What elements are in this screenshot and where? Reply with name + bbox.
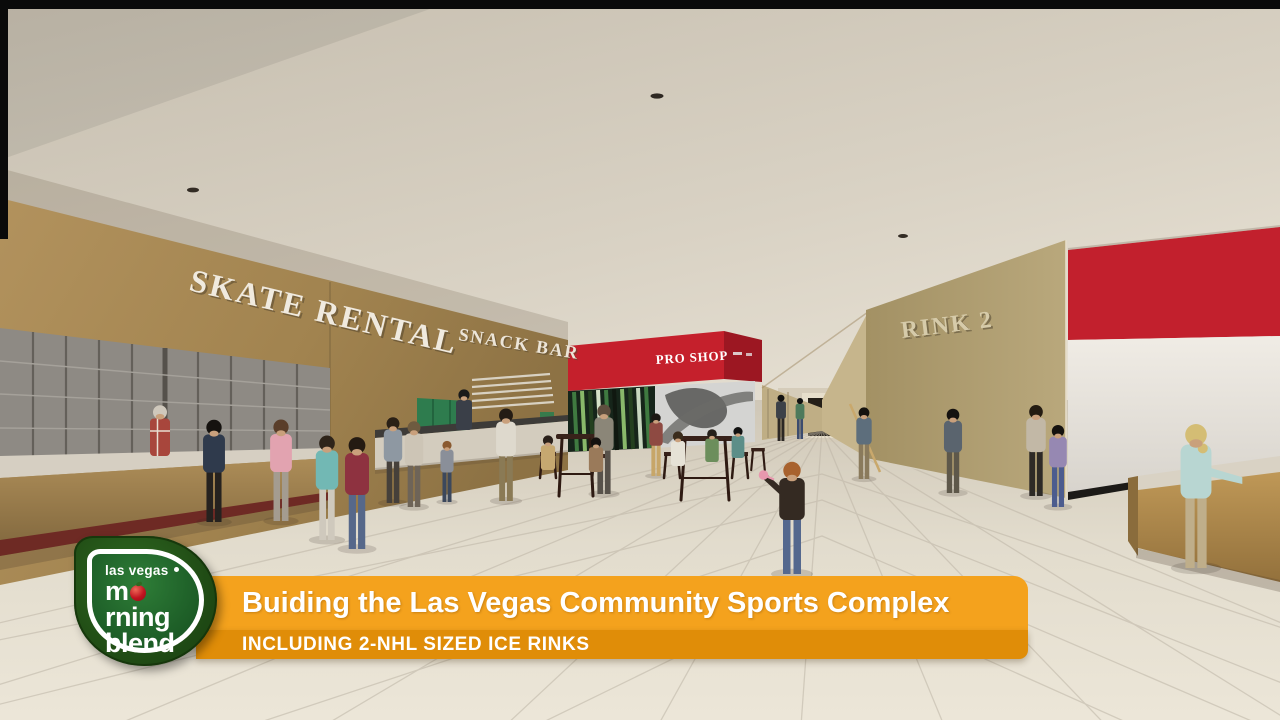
lower-third: Buiding the Las Vegas Community Sports C… [196, 576, 1028, 659]
broadcast-frame: SKATE RENTAL SKATE RENTAL SNACK BAR SNAC… [0, 0, 1280, 720]
morning-blend-logo: las vegas mrning blend [74, 536, 217, 666]
rink2-entrance-wall [1068, 226, 1280, 500]
subline-bar: INCLUDING 2-NHL SIZED ICE RINKS [196, 630, 1028, 659]
logo-inner-ring: las vegas mrning blend [87, 549, 204, 653]
logo-word-morning: mrning [105, 578, 199, 630]
headline-bar: Buiding the Las Vegas Community Sports C… [196, 576, 1028, 630]
logo-word-blend: blend [105, 630, 199, 656]
letterbox-top [0, 0, 1280, 9]
headline-text: Buiding the Las Vegas Community Sports C… [242, 587, 949, 619]
logo-leaf-shape: las vegas mrning blend [74, 536, 217, 666]
letterbox-left [0, 9, 8, 239]
subline-text: INCLUDING 2-NHL SIZED ICE RINKS [242, 634, 590, 655]
tomato-icon [130, 585, 146, 601]
